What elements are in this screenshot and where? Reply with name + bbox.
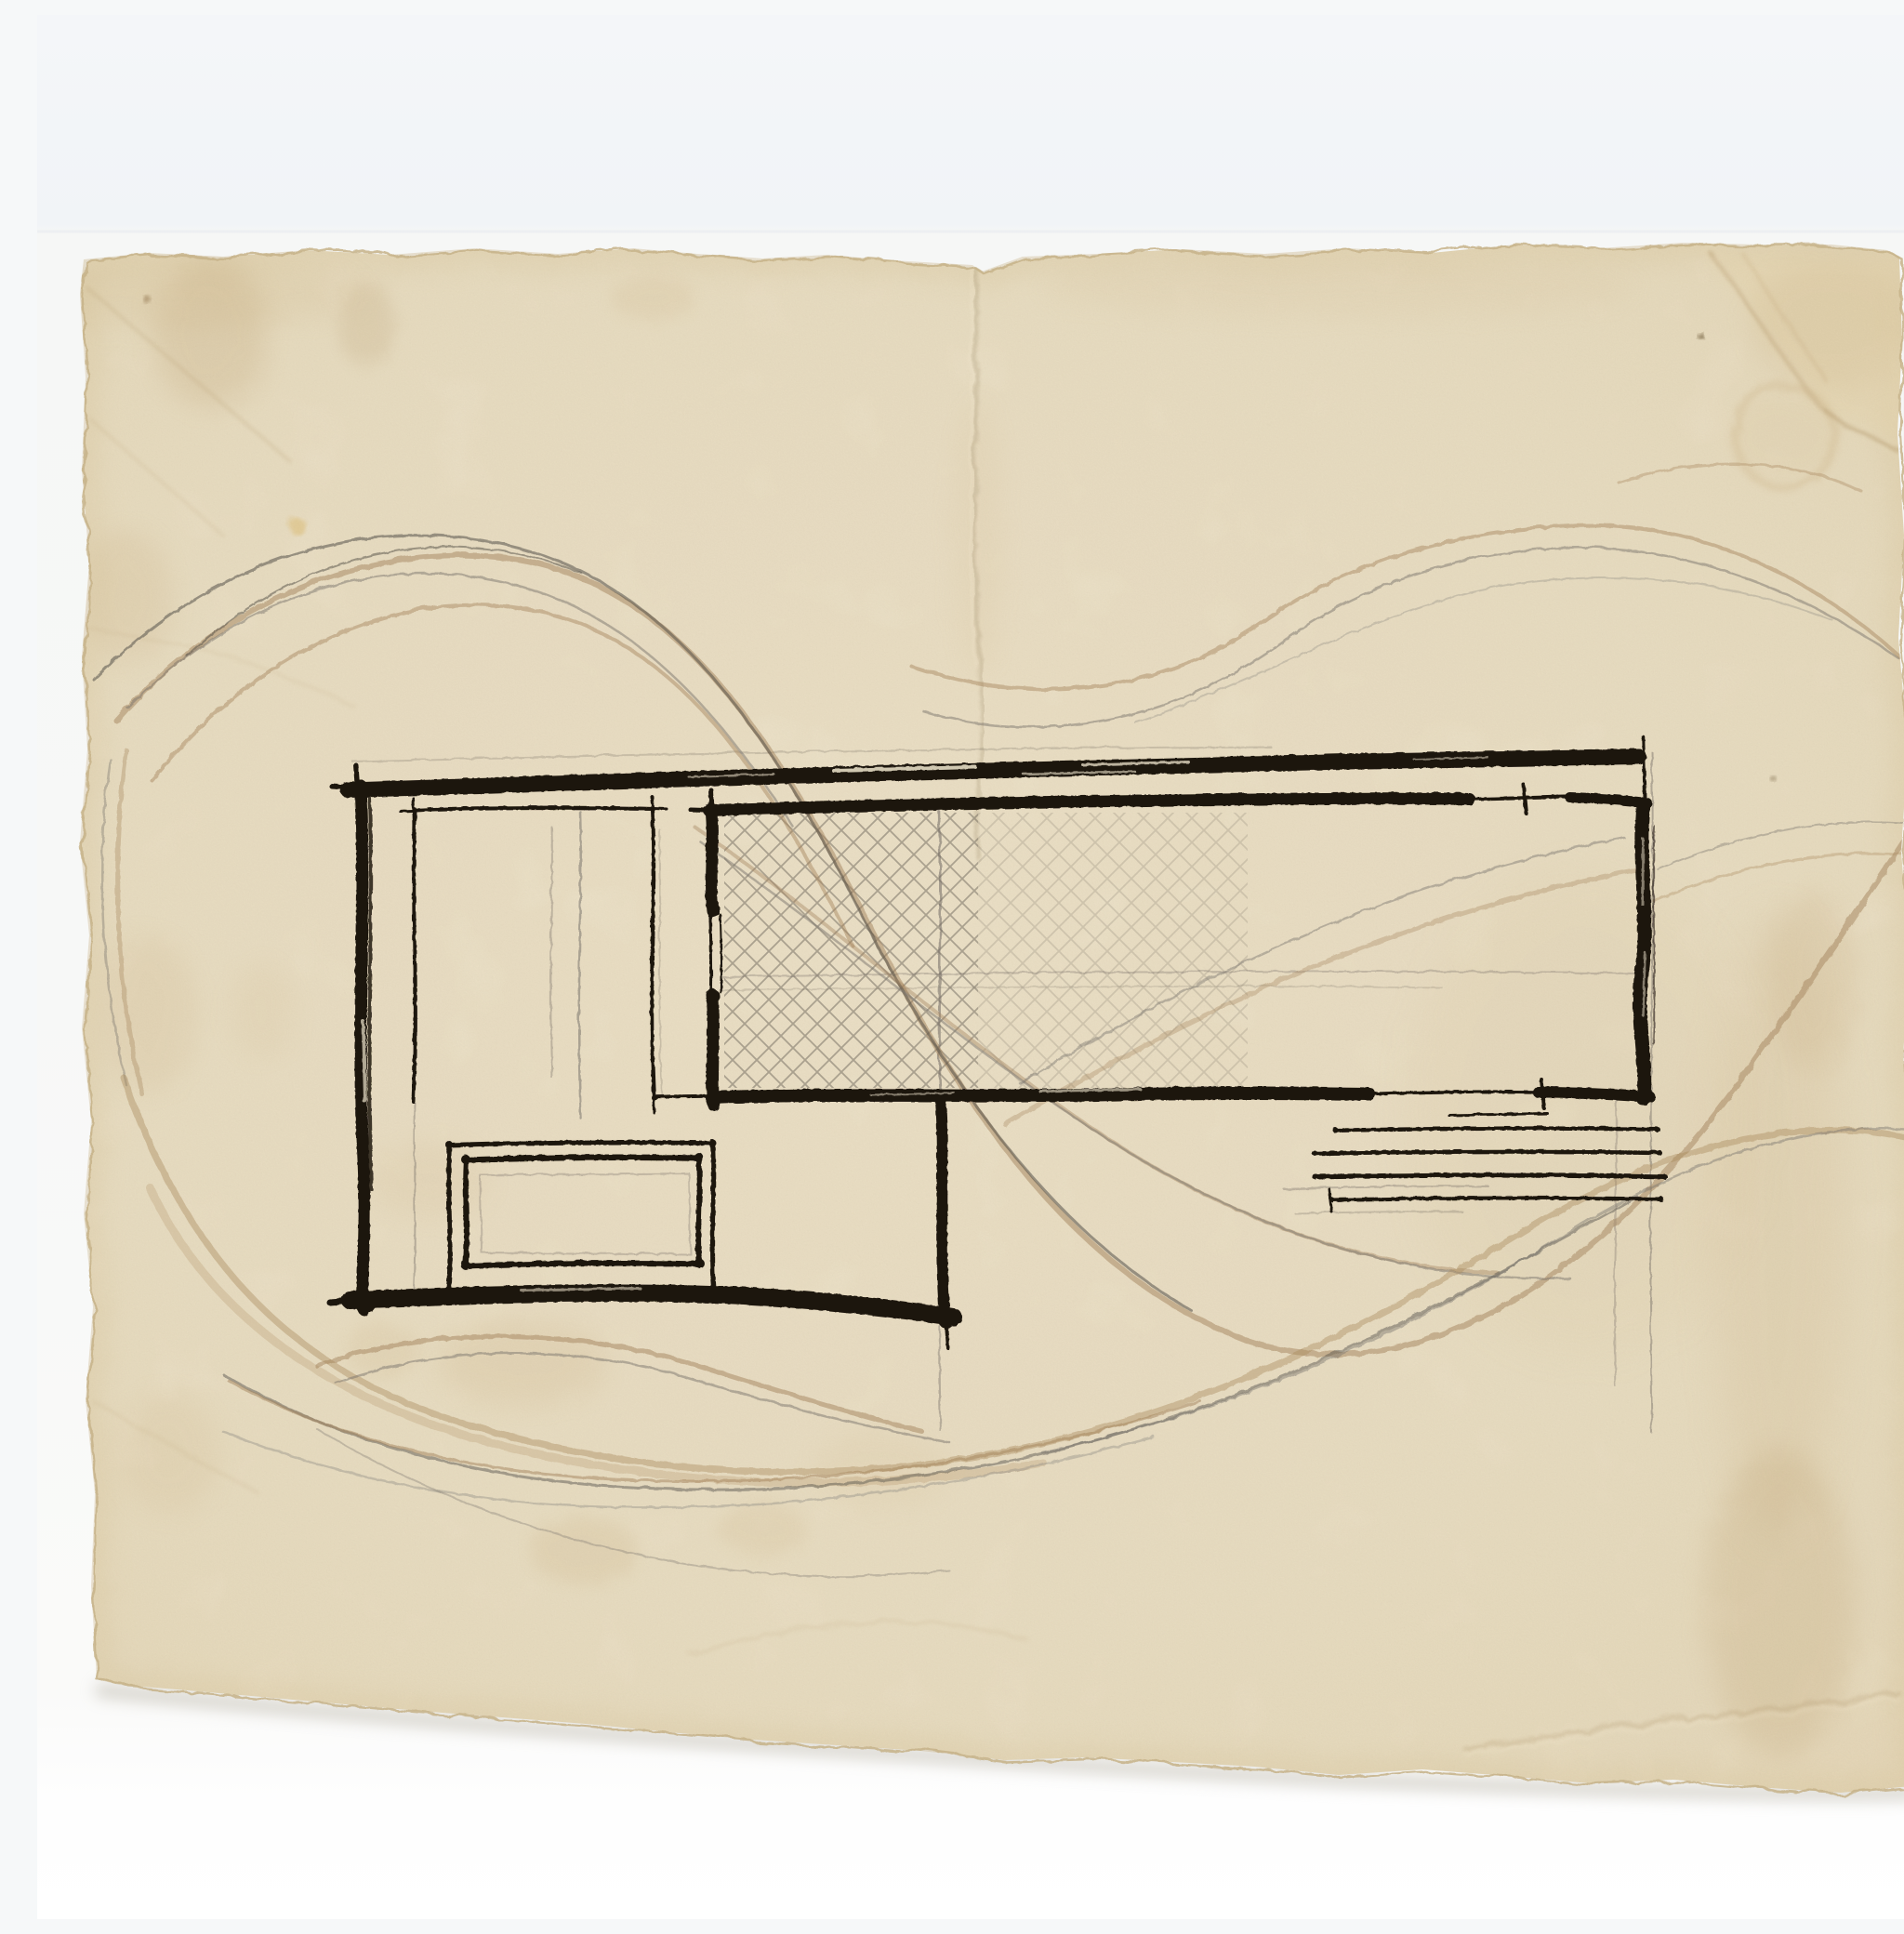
ink-blob [706, 1093, 721, 1108]
deck-line-1 [1335, 1128, 1657, 1130]
small-rect-inner-left [465, 1159, 466, 1265]
deck-line-4 [1331, 1198, 1660, 1199]
deck-line-2 [1315, 1151, 1659, 1153]
left-room-bottom-connector [653, 1095, 707, 1096]
small-rect-inner-right [698, 1158, 699, 1264]
deck-line-0 [1448, 1113, 1547, 1115]
room-bottom-right-segment [1538, 1092, 1649, 1096]
ink-blob [1654, 1126, 1659, 1132]
small-rect-inner-top [465, 1157, 698, 1159]
ink-blob [411, 807, 416, 813]
room-left-upper [710, 808, 712, 910]
ink-dry-brush-highlight [1039, 1089, 1140, 1091]
room-right-top-tick [1643, 736, 1645, 807]
ink-dry-brush-highlight [1642, 839, 1643, 904]
small-rect-outer-left [448, 1145, 449, 1288]
room-bottom-left [711, 1093, 1368, 1097]
ink-dry-brush-highlight [363, 1021, 364, 1101]
left-room-right [652, 809, 654, 1097]
ink-blob [708, 1139, 716, 1146]
left-room-left [413, 811, 415, 1101]
ink-blob [1329, 1197, 1334, 1202]
small-rect-outer-right [712, 1143, 713, 1288]
ink-dry-brush-highlight [521, 1288, 640, 1290]
ink-blob [1312, 1150, 1317, 1156]
ink-blob [651, 1094, 656, 1100]
ink-blob [1332, 1127, 1338, 1133]
ink-blob [1638, 1088, 1653, 1103]
ink-blob [444, 1140, 452, 1147]
ink-blob [649, 805, 654, 811]
ink-blob [460, 1260, 469, 1269]
ink-blob [707, 903, 720, 916]
ink-blob [1656, 1149, 1661, 1155]
ink-blob [707, 989, 720, 1002]
ink-blob [354, 1292, 375, 1313]
ink-blob [460, 1154, 469, 1163]
deck-line-3 [1315, 1174, 1664, 1176]
ink-blob [694, 1152, 703, 1161]
ink-blob [1661, 1173, 1667, 1179]
ink-blob [1312, 1173, 1317, 1179]
ink-blob [694, 1258, 704, 1267]
bottom-wall-overshoot [329, 1300, 353, 1302]
room-top-right-segment [1569, 797, 1646, 802]
ink-blob [1658, 1196, 1663, 1201]
room-left-thin-b [720, 914, 721, 992]
ink-blob [938, 1313, 953, 1328]
room-left-lower [711, 994, 713, 1105]
room-right-hairline [1653, 826, 1654, 1043]
sketch-canvas [37, 15, 1904, 1919]
room-left-thin-a [709, 910, 710, 996]
ink-blob [707, 803, 718, 815]
left-wall-second-stroke [369, 798, 371, 1188]
scanned-drawing [37, 15, 1904, 1919]
small-rect-inner-bottom [465, 1263, 699, 1265]
riser-wall [940, 1099, 945, 1318]
